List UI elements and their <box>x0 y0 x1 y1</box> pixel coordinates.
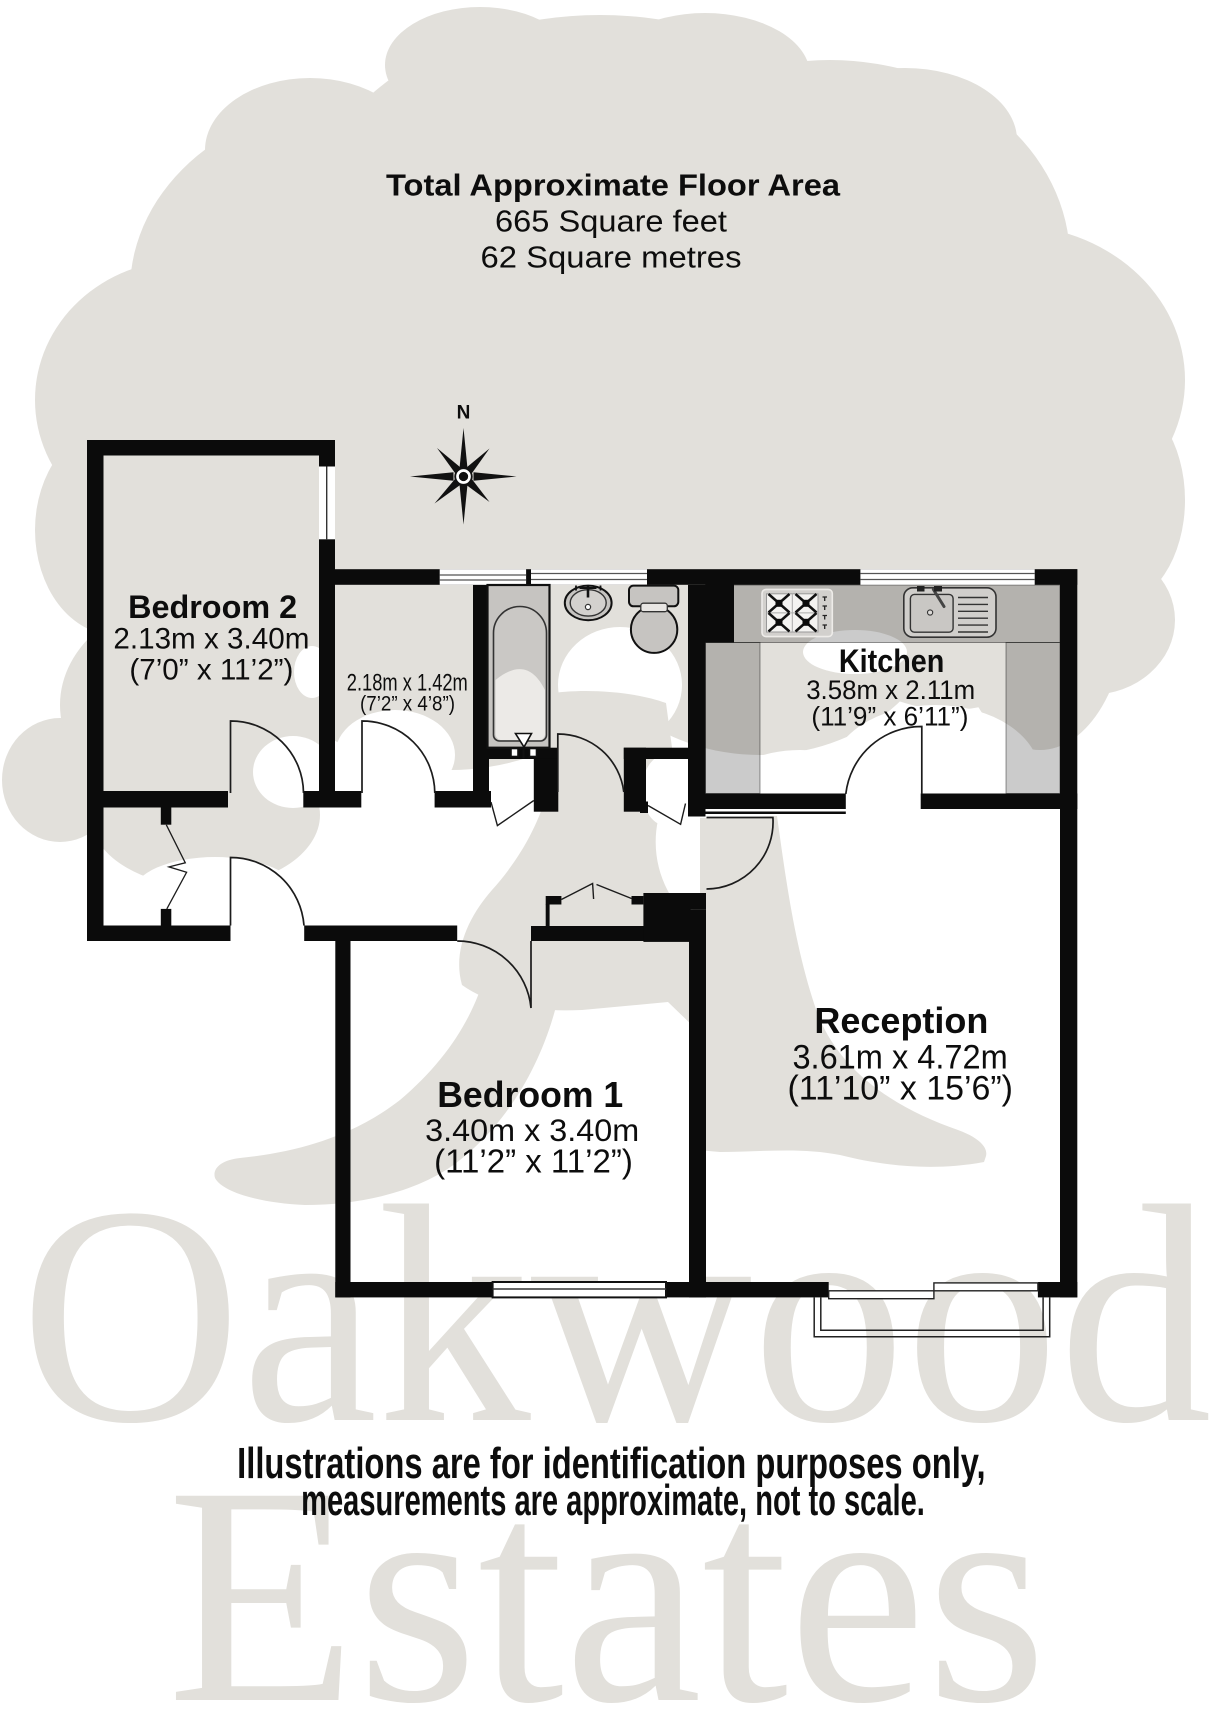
svg-text:Total Approximate Floor Area: Total Approximate Floor Area <box>386 167 841 202</box>
svg-text:(7’0” x 11’2”): (7’0” x 11’2”) <box>129 654 293 687</box>
svg-text:62 Square metres: 62 Square metres <box>481 239 742 274</box>
svg-text:(7’2” x 4’8”): (7’2” x 4’8”) <box>360 692 455 716</box>
svg-text:2.13m x 3.40m: 2.13m x 3.40m <box>113 623 309 656</box>
svg-text:665 Square feet: 665 Square feet <box>495 203 727 238</box>
svg-text:3.58m x 2.11m: 3.58m x 2.11m <box>806 675 975 705</box>
svg-text:Reception: Reception <box>814 1000 988 1041</box>
svg-text:(11’2” x 11’2”): (11’2” x 11’2”) <box>434 1142 633 1179</box>
svg-text:(11’10” x 15’6”): (11’10” x 15’6”) <box>787 1070 1013 1108</box>
svg-text:(11’9” x 6’11”): (11’9” x 6’11”) <box>811 702 968 732</box>
svg-text:measurements are approximate,: measurements are approximate, not to sca… <box>301 1476 925 1525</box>
svg-text:N: N <box>457 403 471 424</box>
svg-text:Bedroom 1: Bedroom 1 <box>437 1074 623 1115</box>
svg-text:Bedroom 2: Bedroom 2 <box>128 589 297 625</box>
svg-text:Kitchen: Kitchen <box>839 643 944 679</box>
